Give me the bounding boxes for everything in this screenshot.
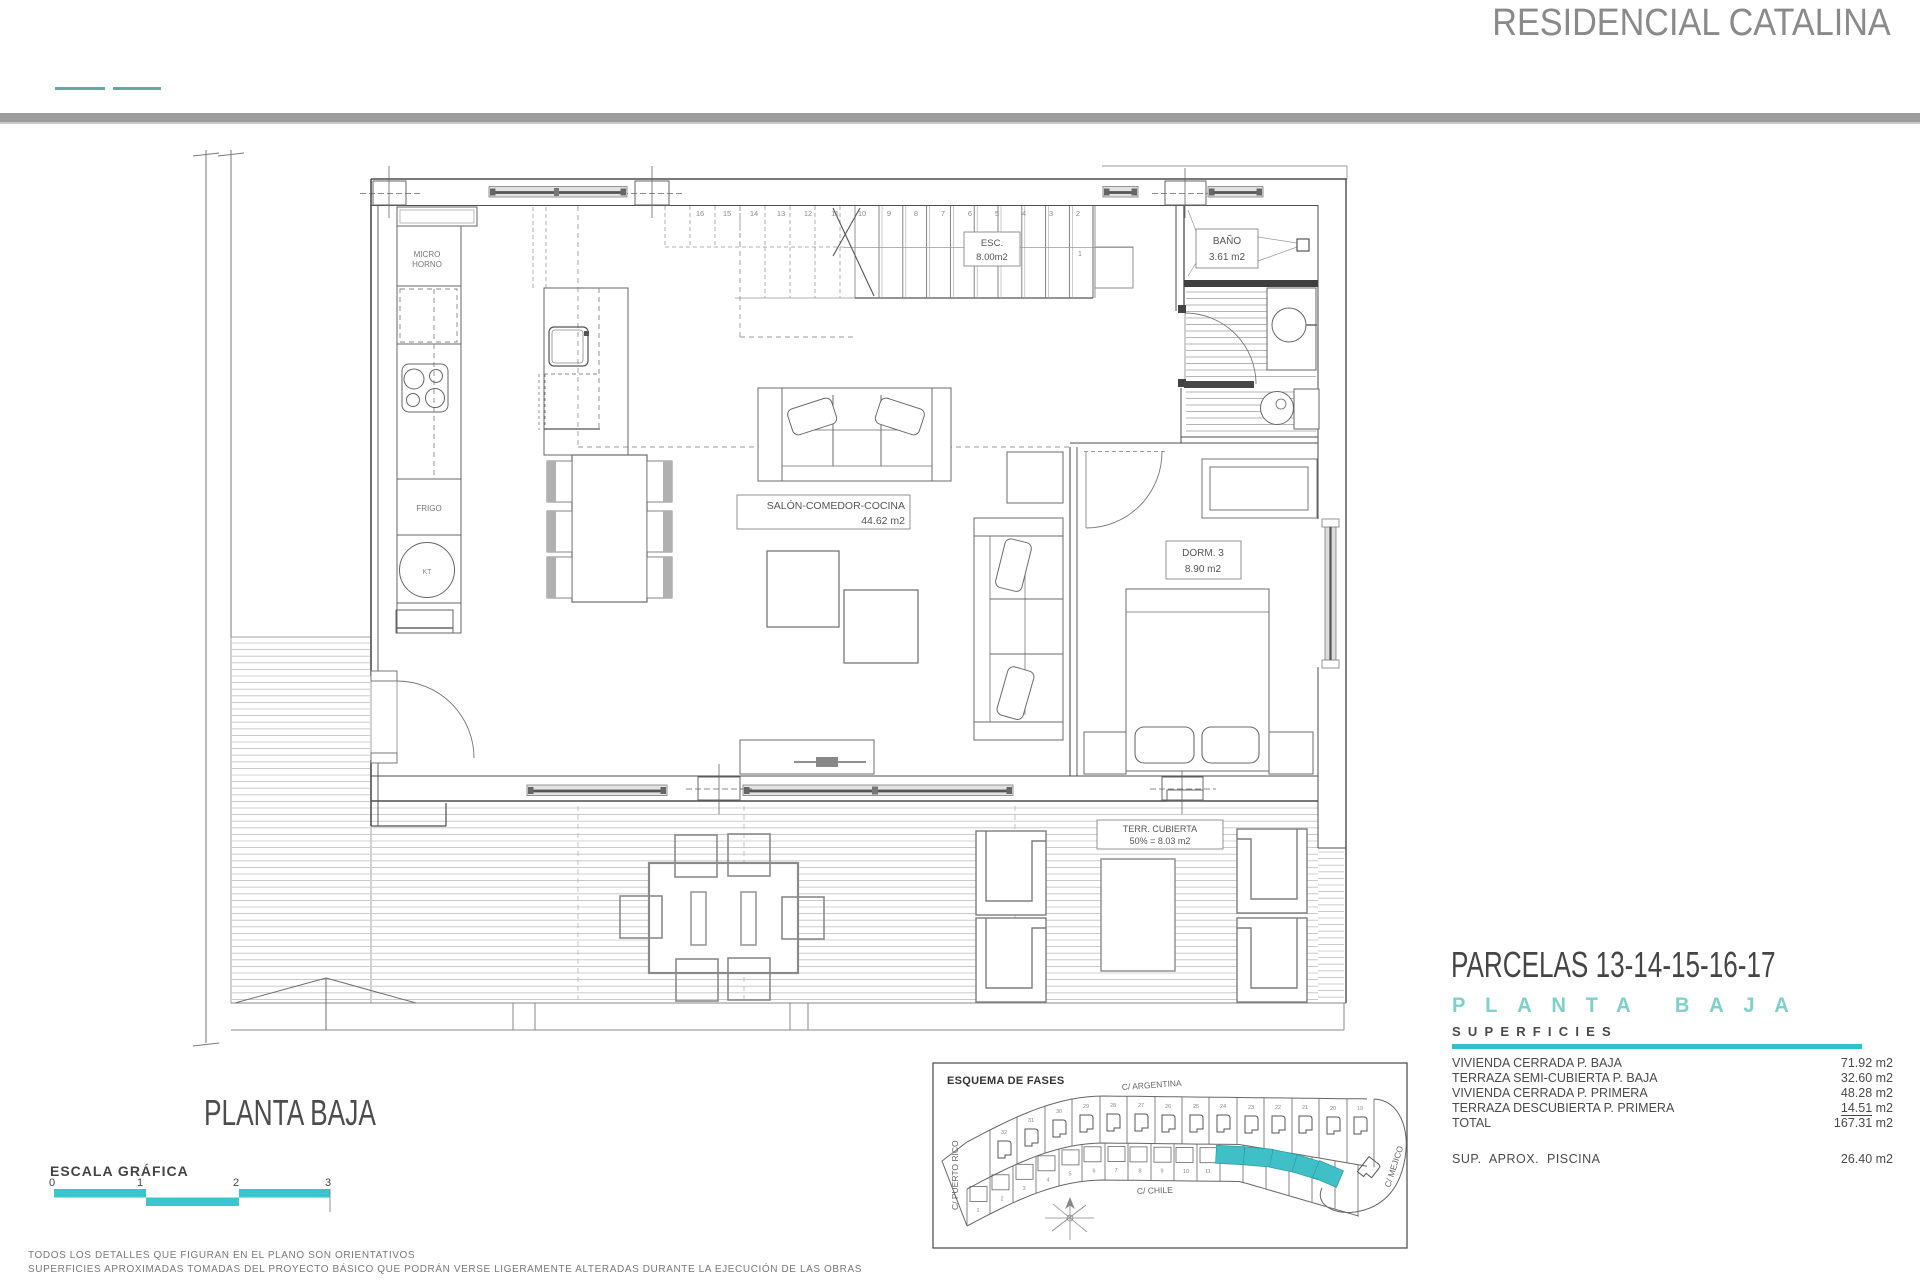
svg-text:8: 8	[1138, 1168, 1141, 1174]
svg-text:C/ CHILE: C/ CHILE	[1137, 1185, 1174, 1196]
svg-text:10: 10	[1183, 1169, 1189, 1175]
svg-text:0: 0	[49, 1177, 55, 1189]
svg-text:2: 2	[1076, 209, 1080, 218]
svg-text:16: 16	[696, 209, 704, 218]
svg-text:25: 25	[1193, 1104, 1199, 1110]
svg-text:15: 15	[723, 209, 731, 218]
svg-text:50% = 8.03 m2: 50% = 8.03 m2	[1130, 836, 1191, 846]
svg-text:6: 6	[1092, 1168, 1095, 1174]
svg-text:1: 1	[137, 1177, 143, 1189]
svg-text:1: 1	[1078, 251, 1082, 258]
svg-text:2: 2	[233, 1177, 239, 1189]
svg-text:BAÑO: BAÑO	[1213, 234, 1242, 247]
svg-text:22: 22	[1275, 1105, 1281, 1111]
svg-text:SALÓN-COMEDOR-COCINA: SALÓN-COMEDOR-COCINA	[767, 499, 905, 512]
svg-text:8.00m2: 8.00m2	[976, 252, 1008, 263]
svg-text:13: 13	[777, 209, 785, 218]
svg-text:3.61 m2: 3.61 m2	[1209, 252, 1246, 263]
svg-text:KT: KT	[423, 569, 433, 576]
svg-text:TERR. CUBIERTA: TERR. CUBIERTA	[1123, 824, 1197, 834]
svg-text:30: 30	[1056, 1109, 1062, 1115]
svg-text:3: 3	[1022, 1186, 1025, 1192]
svg-text:26: 26	[1165, 1104, 1171, 1110]
svg-text:9: 9	[887, 209, 891, 218]
svg-text:11: 11	[831, 209, 839, 218]
svg-text:7: 7	[1114, 1168, 1117, 1174]
svg-text:4: 4	[1022, 209, 1026, 218]
svg-text:21: 21	[1302, 1105, 1308, 1111]
svg-text:4: 4	[1046, 1177, 1049, 1183]
svg-text:7: 7	[941, 209, 945, 218]
svg-text:3: 3	[325, 1177, 331, 1189]
svg-text:24: 24	[1220, 1104, 1226, 1110]
svg-text:32: 32	[1001, 1130, 1007, 1136]
svg-text:3: 3	[1049, 209, 1053, 218]
svg-text:19: 19	[1357, 1106, 1363, 1112]
svg-text:2: 2	[1000, 1196, 1003, 1202]
svg-text:5: 5	[995, 209, 999, 218]
svg-text:ESCALA GRÁFICA: ESCALA GRÁFICA	[50, 1163, 189, 1179]
svg-text:1: 1	[976, 1208, 979, 1214]
svg-text:31: 31	[1028, 1118, 1034, 1124]
svg-text:HORNO: HORNO	[412, 260, 442, 269]
svg-text:ESC.: ESC.	[981, 238, 1003, 249]
svg-text:29: 29	[1083, 1104, 1089, 1110]
svg-text:6: 6	[968, 209, 972, 218]
svg-text:DORM. 3: DORM. 3	[1182, 548, 1224, 559]
svg-text:MICRO: MICRO	[414, 250, 441, 259]
svg-text:27: 27	[1138, 1103, 1144, 1109]
svg-text:23: 23	[1248, 1105, 1254, 1111]
svg-text:10: 10	[858, 209, 866, 218]
svg-text:ESQUEMA DE FASES: ESQUEMA DE FASES	[947, 1075, 1064, 1087]
svg-text:28: 28	[1110, 1103, 1116, 1109]
svg-text:14: 14	[750, 209, 758, 218]
svg-text:12: 12	[804, 209, 812, 218]
svg-text:44.62 m2: 44.62 m2	[861, 515, 905, 527]
svg-text:11: 11	[1205, 1169, 1211, 1175]
svg-text:5: 5	[1068, 1171, 1071, 1177]
svg-text:8.90 m2: 8.90 m2	[1185, 564, 1222, 575]
svg-text:8: 8	[914, 209, 918, 218]
svg-text:20: 20	[1330, 1106, 1336, 1112]
svg-text:FRIGO: FRIGO	[416, 504, 441, 513]
svg-text:9: 9	[1160, 1169, 1163, 1175]
